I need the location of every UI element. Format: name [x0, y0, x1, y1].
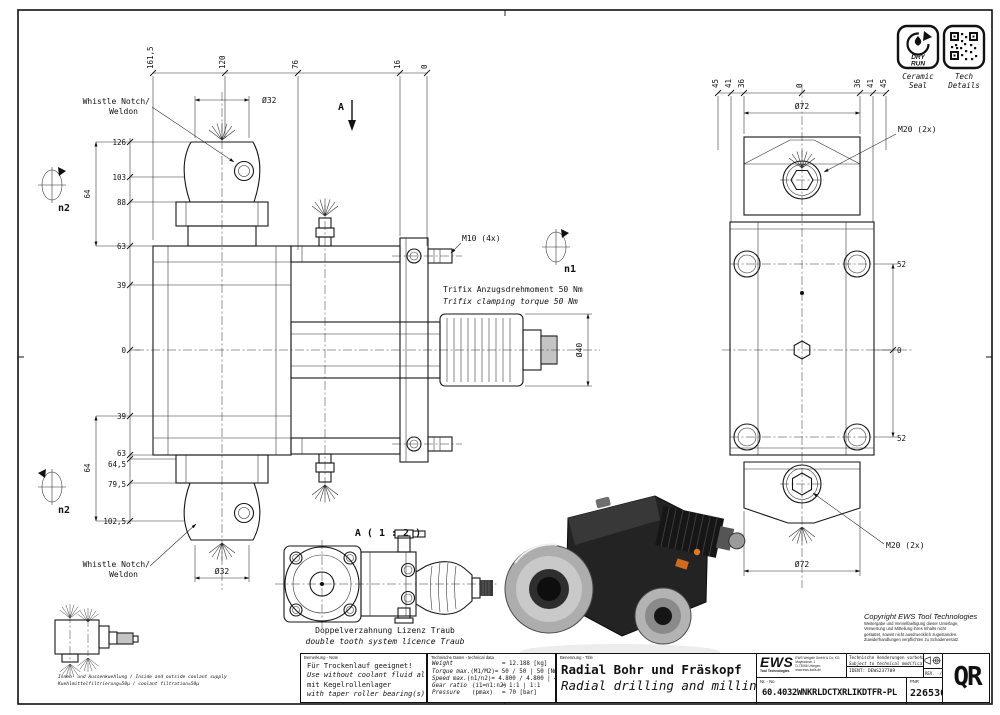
dim-label: 120 [218, 55, 227, 69]
copyright-line: Zuwiderhandlungen verpflichten zu Schade… [864, 637, 990, 642]
dia-shaft-label: Ø40 [574, 343, 584, 358]
tech-value: = 50 / 50 | 50 [Nm] [495, 669, 561, 675]
copyright-block: Copyright EWS Tool Technologies Weiterga… [864, 612, 990, 642]
ident-value: IDENT: DEWS237709 [849, 669, 923, 674]
drawing-title-de: Radial Bohr und Fräskopf [561, 662, 756, 677]
whistle-bottom-label: Whistle Notch/ [83, 560, 151, 569]
title-cell: Benennung - Title Radial Bohr und Fräsko… [557, 654, 756, 704]
section-label: A [338, 102, 344, 113]
pnr-header: PNR [910, 679, 942, 684]
dim-label: 126 [112, 138, 126, 147]
tech-details-badge: Tech Details [944, 26, 984, 90]
section-arrow-icon [348, 120, 356, 131]
tech-data-row: Torque max. (M1/M2) = 50 / 50 | 50 [Nm] [432, 669, 555, 675]
tech-data-row: Pressure (pmax) = 70 [bar] [432, 690, 555, 696]
address-line: www.ews-tools.de [795, 668, 839, 672]
projection-symbol-icon [924, 654, 942, 667]
dim-label: 161,5 [146, 46, 155, 69]
dim-label: 36 [853, 78, 862, 88]
company-address: EWS Weigele GmbH & Co. KG Maybachstr. 1 … [795, 656, 839, 677]
nr-header: Nr. - No [760, 679, 906, 684]
dia-top-label: Ø32 [262, 95, 277, 105]
remark-line: Für Trockenlauf geeignet! [307, 662, 426, 670]
dim-label: 39 [117, 281, 126, 290]
tech-value: = 70 [bar] [502, 690, 537, 696]
notice-en: Subject to technical modifications! [849, 661, 923, 666]
dim-label: 39 [117, 412, 126, 421]
dim-label: 0 [420, 64, 429, 69]
coolant-sketch [55, 604, 138, 678]
tech-param: (i1=n1:n2) [472, 683, 502, 689]
rev-value: REV. -/C [925, 671, 942, 676]
tech-label: Pressure [432, 690, 472, 696]
n2-upper-label: n2 [58, 203, 70, 214]
n1-label: n1 [564, 264, 576, 275]
trifix-note-en: Trifix clamping torque 50 Nm [443, 297, 578, 306]
drawing-sheet: 161,5 120 76 16 0 Ø32 A Whistle Notch/ W… [0, 0, 1000, 715]
dim-label: 0 [897, 346, 902, 355]
dim-label: 41 [724, 79, 733, 88]
tech-param: (n1/n2) [467, 676, 491, 682]
dim-label: 16 [393, 59, 402, 69]
rev-cell: REV. -/C [923, 669, 942, 678]
ceramic-caption: Ceramic [902, 72, 934, 81]
tech-param: (pmax) [472, 690, 502, 696]
title-header: Benennung - Title [560, 655, 756, 660]
qr-code-icon [950, 32, 978, 60]
tech-label: Gear ratio [432, 683, 472, 689]
tech-label: Weight [432, 661, 472, 667]
title-block: Benennung - Title Radial Bohr und Fräsko… [556, 653, 990, 703]
n2-lower-label: n2 [58, 505, 70, 516]
dim-label: 0 [795, 83, 804, 88]
dia-bottom-label: Ø32 [215, 566, 230, 576]
dim-label: 63 [117, 242, 126, 251]
side-view: 45 41 36 0 36 41 45 Ø72 M20 (2x) [711, 78, 937, 588]
tech-data-header: Technische Daten - technical data [431, 655, 555, 660]
run-label: RUN [911, 61, 925, 68]
rotation-n2-lower-icon [38, 469, 66, 505]
rotation-n1-icon [542, 229, 570, 265]
ceramic-seal-badge: DRY RUN Ceramic Seal [898, 26, 938, 90]
dim-label: 36 [737, 78, 746, 88]
logo-cell: EWS Tool Technologies EWS Weigele GmbH &… [756, 654, 846, 678]
part-number-cell: Nr. - No 60.4032WNKRLDCTXRLIKDTFR-PL [756, 678, 906, 704]
ews-logo-sub: Tool Technologies [760, 669, 793, 673]
tech-data-row: Gear ratio (i1=n1:n2) = 1:1 | 1:1 [432, 683, 555, 689]
drawing-title-en: Radial drilling and milling head [561, 678, 756, 693]
qr-cell: QR [942, 654, 991, 704]
pnr-value: 226530 [910, 688, 942, 699]
rotation-n2-upper-icon [38, 167, 66, 203]
tech-label: Speed max. [432, 676, 467, 682]
ews-logo: EWS [760, 656, 793, 669]
front-view: 161,5 120 76 16 0 Ø32 A Whistle Notch/ W… [38, 46, 600, 590]
pnr-cell: PNR 226530 [906, 678, 942, 704]
tech-value: = 1:1 | 1:1 [502, 683, 540, 689]
ident-cell: IDENT: DEWS237709 [846, 667, 923, 678]
detail-caption-de: Doppelverzahnung Lizenz Traub [315, 626, 455, 635]
notice-de: Technische Aenderungen vorbehalten! [849, 655, 923, 660]
dim-label: 76 [291, 59, 300, 69]
dim-label: 52 [897, 260, 906, 269]
qr-big-label: QR [943, 662, 991, 692]
tech-value: = 12.188 [kg] [502, 661, 547, 667]
detail-view-a: A ( 1 : 2 ) Doppelverzahnung Lizenz Trau… [275, 528, 498, 646]
dim-label: 41 [866, 79, 875, 88]
tech-data-block: Technische Daten - technical data Weight… [427, 653, 556, 703]
dim-label: 52 [897, 434, 906, 443]
m10-label: M10 (4x) [462, 234, 501, 243]
tech-label: Torque max. [432, 669, 470, 675]
render-3d [505, 496, 749, 660]
whistle-top-label: Whistle Notch/ [83, 97, 151, 106]
dim-label: 102,5 [103, 517, 126, 526]
remark-header: Bemerkung - Note [304, 655, 426, 660]
trifix-note-de: Trifix Anzugsdrehmoment 50 Nm [443, 285, 583, 294]
part-number: 60.4032WNKRLDCTXRLIKDTFR-PL [762, 688, 906, 698]
dim-label: 88 [117, 198, 127, 207]
tech-caption: Tech [955, 72, 974, 81]
dim-label: 79,5 [108, 480, 126, 489]
dia72-bottom-label: Ø72 [795, 559, 810, 569]
details-caption: Details [947, 81, 980, 90]
dim-label: 45 [879, 79, 888, 88]
dia72-top-label: Ø72 [795, 101, 810, 111]
coolant-note-line1: Innen- und Aussenkuehlung / Inside and o… [58, 674, 227, 681]
detail-caption-en: double tooth system licence Traub [306, 637, 465, 646]
seal-caption: Seal [909, 81, 927, 90]
whistle-top-label2: Weldon [109, 107, 138, 116]
coolant-note-line2: Kuehlmittelfiltrierung=50µ / coolant fil… [58, 681, 227, 688]
projection-cell [923, 654, 942, 669]
dim-label: 45 [711, 79, 720, 88]
dry-run-icon [908, 31, 933, 55]
dim-label: 64 [83, 189, 92, 199]
dim-label: 63 [117, 449, 126, 458]
tech-param: (M1/M2) [470, 669, 494, 675]
dim-label: 0 [121, 346, 126, 355]
remark-line: Use without coolant fluid allowed! [307, 671, 426, 679]
m20-top-label: M20 (2x) [898, 125, 937, 134]
tech-param [472, 661, 502, 667]
remark-line: mit Kegelrollenlager [307, 681, 426, 689]
remark-block: Bemerkung - Note Für Trockenlauf geeigne… [300, 653, 427, 703]
dim-label: 103 [112, 173, 126, 182]
copyright-title: Copyright EWS Tool Technologies [864, 612, 990, 621]
tech-data-row: Speed max. (n1/n2) = 4.800 / 4.800 | 4.8… [432, 676, 555, 682]
dim-label: 64,5 [108, 460, 126, 469]
whistle-bottom-label2: Weldon [109, 570, 138, 579]
remark-line: with taper roller bearing(s) [307, 690, 426, 698]
coolant-note: Innen- und Aussenkuehlung / Inside and o… [58, 674, 227, 688]
cad-drawing: 161,5 120 76 16 0 Ø32 A Whistle Notch/ W… [0, 0, 1000, 715]
dim-label: 64 [83, 463, 92, 473]
notice-cell: Technische Aenderungen vorbehalten! Subj… [846, 654, 923, 667]
tech-data-row: Weight = 12.188 [kg] [432, 661, 555, 667]
m20-bottom-label: M20 (2x) [886, 541, 925, 550]
